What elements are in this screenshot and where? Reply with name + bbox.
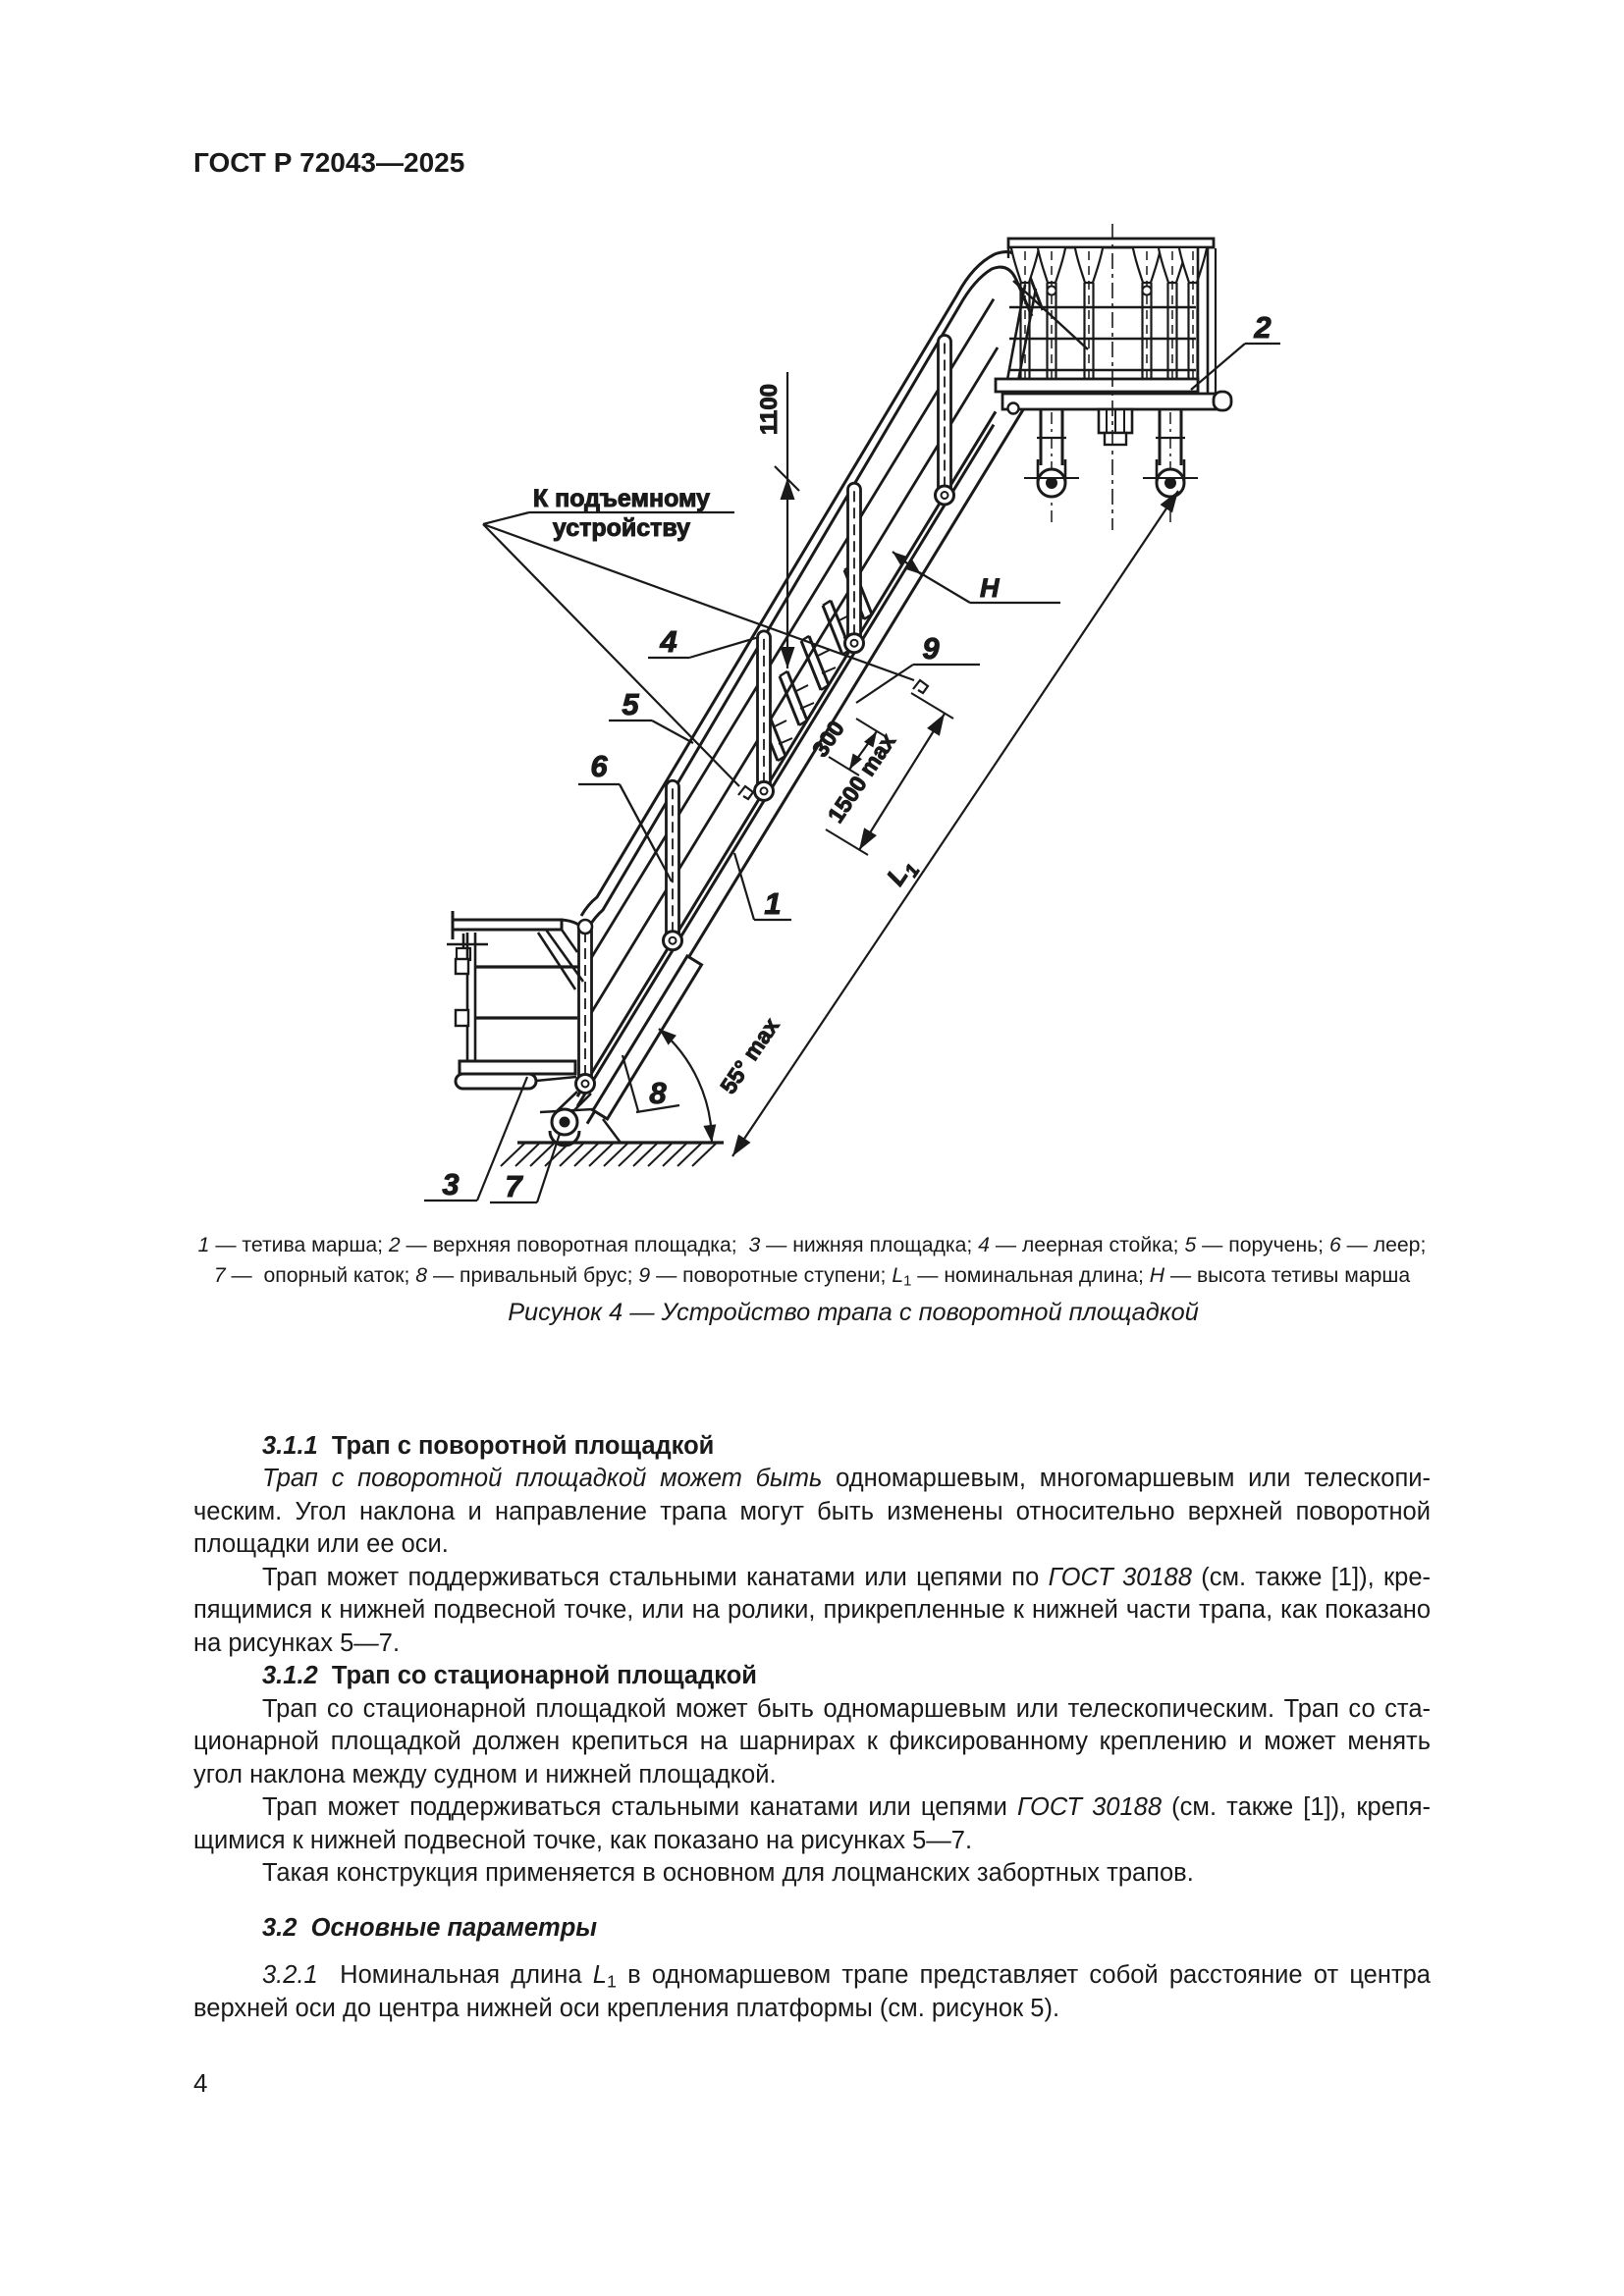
svg-text:H: H <box>980 573 1000 603</box>
svg-text:55° max: 55° max <box>715 1013 784 1098</box>
svg-text:3: 3 <box>442 1167 459 1201</box>
svg-text:5: 5 <box>622 687 639 721</box>
svg-text:К подъемному: К подъемному <box>533 485 710 512</box>
svg-text:8: 8 <box>649 1076 667 1110</box>
svg-text:1: 1 <box>764 886 781 921</box>
svg-text:9: 9 <box>922 631 940 666</box>
svg-text:6: 6 <box>590 749 608 783</box>
svg-text:устройству: устройству <box>553 514 690 542</box>
svg-text:7: 7 <box>505 1169 523 1203</box>
svg-text:4: 4 <box>659 624 677 659</box>
svg-text:2: 2 <box>1253 310 1271 345</box>
svg-text:L1: L1 <box>881 853 925 894</box>
svg-text:1100: 1100 <box>756 384 783 435</box>
